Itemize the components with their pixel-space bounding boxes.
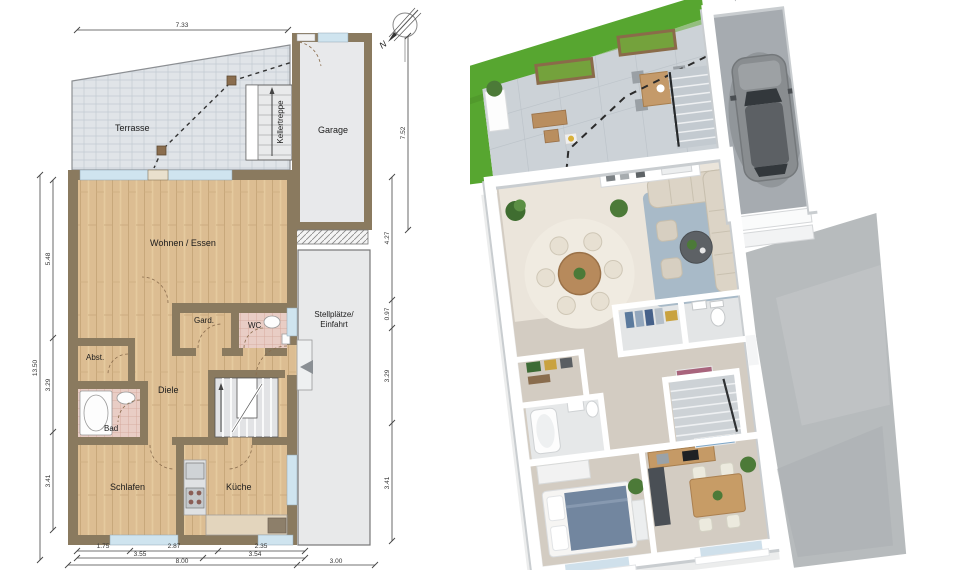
path-light [157, 146, 166, 155]
svg-text:5.48: 5.48 [45, 252, 52, 265]
svg-text:2.87: 2.87 [168, 543, 181, 550]
svg-text:3.54: 3.54 [249, 551, 262, 558]
svg-text:2.35: 2.35 [255, 543, 268, 550]
garage-window [318, 33, 348, 42]
living-window-1 [80, 170, 148, 180]
floorplan-page: Terrasse Kellertreppe Garage Stellplätze… [0, 0, 960, 570]
entrance-opening [287, 345, 297, 375]
parking-label-2: Einfahrt [320, 320, 348, 329]
svg-text:0.97: 0.97 [384, 307, 391, 320]
bath-sink [117, 392, 135, 404]
svg-text:7.52: 7.52 [400, 126, 407, 139]
pouf [660, 257, 682, 279]
svg-text:3.41: 3.41 [45, 474, 52, 487]
abst-label: Abst. [86, 353, 104, 362]
svg-text:8.00: 8.00 [176, 558, 189, 565]
terrace-label: Terrasse [115, 123, 150, 133]
kellertreppe-label: Kellertreppe [276, 100, 285, 144]
kitchen-label: Küche [226, 482, 252, 492]
svg-text:7.33: 7.33 [176, 22, 189, 29]
wc-window [287, 308, 297, 336]
svg-text:1.75: 1.75 [97, 543, 110, 550]
wc-sink [264, 316, 280, 328]
parking-label-1: Stellplätze/ [314, 310, 354, 319]
gard-label: Gard. [194, 316, 214, 325]
compass-north-icon: N [377, 8, 421, 62]
diele-label: Diele [158, 385, 179, 395]
svg-text:3.00: 3.00 [330, 558, 343, 565]
staircase [215, 378, 278, 437]
outdoor-chair [544, 129, 559, 143]
bad-label: Bad [104, 424, 118, 433]
svg-text:3.29: 3.29 [384, 369, 391, 382]
svg-text:4.27: 4.27 [384, 231, 391, 244]
house-2d: Wohnen / Essen Gard. WC Abst. Diele Bad … [68, 170, 313, 545]
living-label: Wohnen / Essen [150, 238, 216, 248]
terrace-door [148, 170, 168, 180]
floorplan-2d: Terrasse Kellertreppe Garage Stellplätze… [0, 0, 470, 570]
garage-area: Garage [292, 33, 372, 230]
garage-label: Garage [318, 125, 348, 135]
svg-text:3.55: 3.55 [134, 551, 147, 558]
pouf [656, 220, 678, 242]
wc-floor [239, 313, 287, 348]
bed [542, 481, 637, 557]
garage-door-hatch [296, 230, 368, 244]
svg-text:3.41: 3.41 [384, 476, 391, 489]
compass-n-label: N [377, 38, 388, 50]
floorplan-3d [470, 0, 960, 570]
svg-text:3.29: 3.29 [45, 378, 52, 391]
path-light [227, 76, 236, 85]
wc-label: WC [248, 321, 262, 330]
svg-text:13.50: 13.50 [32, 359, 39, 376]
kitchen-window [287, 455, 297, 505]
basement-stairs: Kellertreppe [246, 85, 292, 160]
parking-area: Stellplätze/ Einfahrt [298, 250, 370, 545]
living-window-2 [168, 170, 232, 180]
bedroom-label: Schlafen [110, 482, 145, 492]
